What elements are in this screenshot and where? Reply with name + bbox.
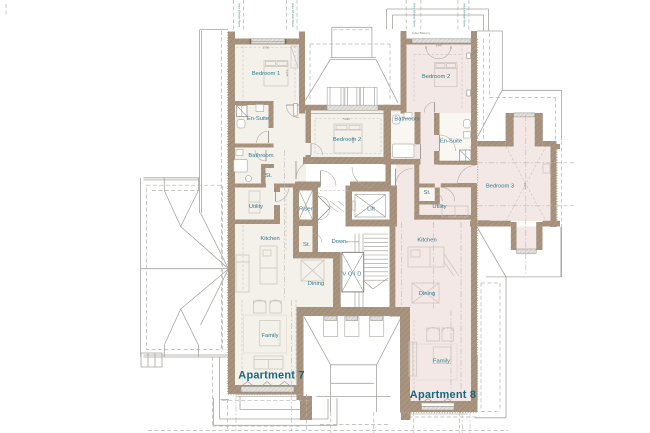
svg-text:En-Suite: En-Suite — [440, 139, 462, 145]
svg-text:4471: 4471 — [442, 216, 449, 220]
svg-text:3175: 3175 — [285, 70, 289, 77]
svg-text:Juliet Balcony: Juliet Balcony — [412, 31, 431, 35]
svg-text:4377: 4377 — [523, 183, 527, 190]
svg-text:Dining: Dining — [308, 281, 324, 287]
svg-text:Kitchen: Kitchen — [260, 236, 279, 242]
svg-text:Lift: Lift — [367, 207, 375, 213]
svg-text:Family: Family — [261, 333, 278, 339]
svg-text:Velux Window Above: Velux Window Above — [238, 3, 242, 28]
svg-text:5436: 5436 — [343, 117, 350, 121]
svg-text:VOID: VOID — [342, 272, 363, 278]
svg-text:Down: Down — [332, 239, 347, 245]
svg-text:Bedroom 1: Bedroom 1 — [252, 71, 280, 77]
svg-text:Bedroom 2: Bedroom 2 — [422, 74, 450, 80]
svg-text:2862: 2862 — [351, 137, 355, 144]
svg-text:Kitchen: Kitchen — [417, 238, 436, 244]
svg-text:Apartment 8: Apartment 8 — [410, 389, 476, 401]
svg-text:Bathroom: Bathroom — [394, 117, 419, 123]
svg-text:St.: St. — [423, 190, 430, 196]
svg-text:En-Suite: En-Suite — [247, 116, 269, 122]
svg-text:Velux Window Above: Velux Window Above — [413, 3, 417, 28]
svg-text:Velux Window Above: Velux Window Above — [463, 3, 467, 28]
svg-text:St.: St. — [265, 173, 272, 179]
svg-text:St.: St. — [303, 242, 310, 248]
svg-text:Riser: Riser — [299, 207, 313, 213]
svg-text:Family: Family — [433, 359, 450, 365]
svg-text:2700: 2700 — [263, 46, 270, 50]
svg-text:1447: 1447 — [436, 44, 443, 48]
svg-text:Bedroom 3: Bedroom 3 — [486, 184, 514, 190]
svg-text:Apartment 7: Apartment 7 — [238, 370, 304, 382]
svg-text:Utility: Utility — [432, 204, 446, 210]
svg-text:Bathroom: Bathroom — [248, 153, 273, 159]
svg-text:Velux Window Above: Velux Window Above — [291, 3, 295, 28]
svg-text:Utility: Utility — [249, 204, 263, 210]
svg-text:Dining: Dining — [419, 291, 435, 297]
svg-text:Bedroom 2: Bedroom 2 — [333, 137, 361, 143]
